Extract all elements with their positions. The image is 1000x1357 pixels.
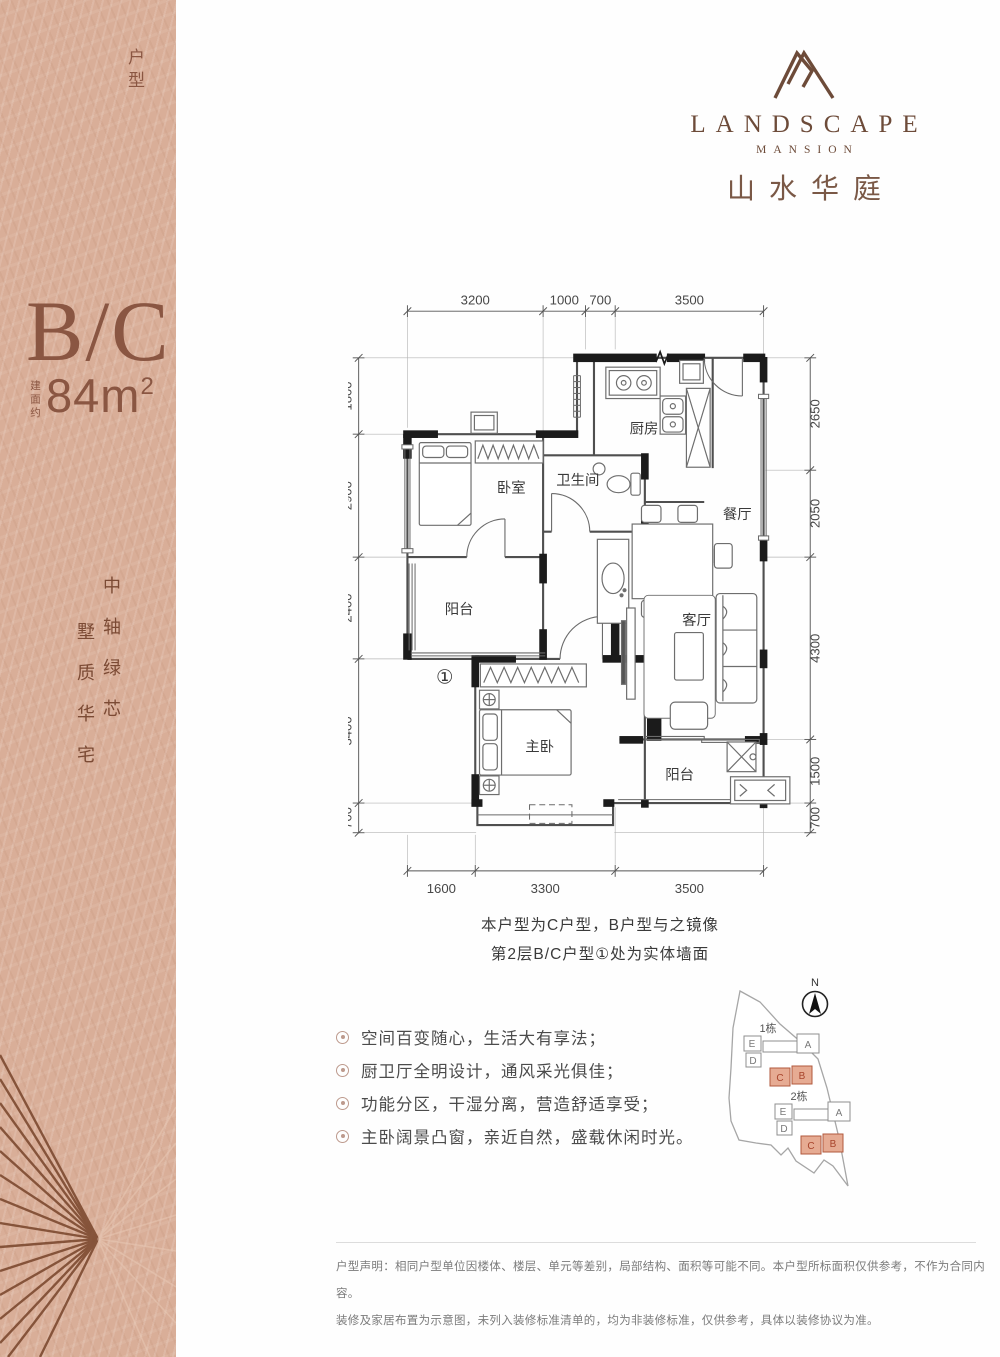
ring-bullet-icon: [336, 1031, 349, 1044]
north-arrow: N: [803, 977, 828, 1017]
dim-bottom-1: 1600: [427, 881, 456, 896]
dim-bottom-2: 3300: [531, 881, 560, 896]
pillow: [446, 446, 467, 457]
slogan-part1: 中轴绿芯: [98, 576, 124, 786]
brand-name-cn: 山水华庭: [664, 167, 944, 207]
solid-wall-marker: ①: [436, 666, 453, 688]
unit-letter: C: [776, 1073, 783, 1084]
plan-note-line1: 本户型为C户型，B户型与之镜像: [390, 912, 810, 941]
feature-item: 主卧阔景凸窗，亲近自然，盛载休闲时光。: [336, 1126, 694, 1146]
unit-type-block: B/C: [26, 288, 171, 374]
area-exponent: 2: [140, 373, 154, 400]
feature-list: 空间百变随心，生活大有享法； 厨卫厅全明设计，通风采光俱佳； 功能分区，干湿分离…: [336, 1027, 694, 1159]
chair: [714, 544, 732, 569]
disclaimer-line1: 户型声明：相同户型单位因楼体、楼层、单元等差别，局部结构、面积等可能不同。本户型…: [336, 1254, 988, 1308]
toilet: [607, 476, 630, 493]
unit-type-label: B/C: [26, 288, 171, 374]
slogan-part2: 墅质华宅: [72, 622, 98, 786]
ring-bullet-icon: [336, 1097, 349, 1110]
dim-top-2: 1000: [550, 292, 579, 307]
feature-item: 功能分区，干湿分离，营造舒适享受；: [336, 1093, 694, 1113]
unit-letter: A: [836, 1108, 843, 1119]
dim-left-1: 1800: [348, 381, 354, 410]
north-label: N: [811, 977, 819, 989]
disclaimer-line2: 装修及家居布置为示意图，未列入装修标准清单的，均为非装修标准，仅供参考，具体以装…: [336, 1308, 988, 1335]
dim-top-4: 3500: [675, 292, 704, 307]
fan-pattern: [0, 1047, 176, 1357]
area-value: 84m2: [46, 372, 155, 419]
dim-top-1: 3200: [461, 292, 490, 307]
sofa: [716, 594, 757, 703]
room-label-living: 客厅: [682, 612, 711, 629]
unit-letter: B: [830, 1139, 837, 1150]
pillow: [423, 446, 444, 457]
floor-plan: 3200 1000 700 3500 1800 2900 2400 3400 7…: [348, 290, 823, 926]
coffee-table: [675, 633, 704, 680]
ring-bullet-icon: [336, 1064, 349, 1077]
chair: [678, 505, 698, 522]
area-prefix: 建面约: [28, 380, 43, 421]
tv: [622, 621, 626, 685]
decorative-side-band: B/C 户型 建面约 84m2 中轴绿芯 墅质华宅: [0, 0, 176, 1357]
cluster2-label: 2栋: [790, 1089, 807, 1103]
chair: [641, 505, 661, 522]
feature-text: 厨卫厅全明设计，通风采光俱佳；: [361, 1058, 624, 1082]
unit-letter: E: [749, 1039, 756, 1050]
room-label-bathroom: 卫生间: [556, 472, 599, 489]
unit-letter: B: [799, 1071, 806, 1082]
unit-letter: E: [780, 1107, 787, 1118]
site-plan: N 1栋 E D A C B 2栋: [680, 946, 980, 1231]
dim-right-4: 1500: [808, 757, 823, 786]
dim-left-2: 2900: [348, 481, 354, 510]
unit-letter: D: [749, 1056, 756, 1067]
room-label-dining: 餐厅: [723, 506, 752, 523]
mountain-logo-icon: [771, 46, 837, 100]
ring-bullet-icon: [336, 1130, 349, 1143]
slogan-vertical: 中轴绿芯 墅质华宅: [72, 576, 124, 786]
site-boundary: [729, 991, 848, 1186]
unit-type-suffix: 户型: [122, 48, 147, 94]
master-wardrobe: [480, 664, 586, 687]
tv-cabinet: [627, 608, 635, 699]
cluster1-label: 1栋: [759, 1021, 776, 1035]
unit-letter: A: [805, 1040, 812, 1051]
unit-letter: C: [807, 1141, 814, 1152]
dim-top-3: 700: [589, 292, 611, 307]
disclaimer: 户型声明：相同户型单位因楼体、楼层、单元等差别，局部结构、面积等可能不同。本户型…: [336, 1254, 988, 1335]
room-label-kitchen: 厨房: [630, 420, 659, 437]
room-label-balcony-back: 阳台: [665, 766, 694, 783]
feature-item: 厨卫厅全明设计，通风采光俱佳；: [336, 1060, 694, 1080]
dim-bottom-3: 3500: [675, 881, 704, 896]
room-label-balcony-front: 阳台: [445, 601, 474, 618]
feature-text: 空间百变随心，生活大有享法；: [361, 1025, 606, 1049]
ottoman: [670, 702, 707, 729]
dining-table: [632, 524, 713, 599]
feature-item: 空间百变随心，生活大有享法；: [336, 1027, 694, 1047]
dim-right-1: 2650: [808, 399, 823, 428]
dim-right-5: 700: [808, 807, 823, 829]
unit-letter: D: [780, 1124, 787, 1135]
dim-left-5: 700: [348, 807, 354, 829]
room-label-bedroom: 卧室: [497, 480, 526, 497]
room-label-master: 主卧: [525, 738, 554, 755]
brand-subtitle-en: MANSION: [664, 144, 944, 156]
feature-text: 主卧阔景凸窗，亲近自然，盛载休闲时光。: [361, 1124, 694, 1148]
unit-area-block: 建面约 84m2: [28, 372, 155, 421]
pillow: [483, 744, 497, 770]
dim-right-2: 2050: [808, 499, 823, 528]
feature-text: 功能分区，干湿分离，营造舒适享受；: [361, 1091, 659, 1115]
brand-name-en: LANDSCAPE: [664, 111, 944, 139]
dim-right-3: 4300: [808, 634, 823, 663]
dim-left-4: 3400: [348, 716, 354, 745]
flyer-page: B/C 户型 建面约 84m2 中轴绿芯 墅质华宅 LANDSCAPE MANS…: [0, 0, 1000, 1357]
divider: [336, 1242, 976, 1243]
brand-logo: LANDSCAPE MANSION 山水华庭: [664, 46, 944, 207]
pillow: [483, 714, 497, 740]
wall-break-symbol: [656, 352, 669, 364]
dim-left-3: 2400: [348, 593, 354, 622]
